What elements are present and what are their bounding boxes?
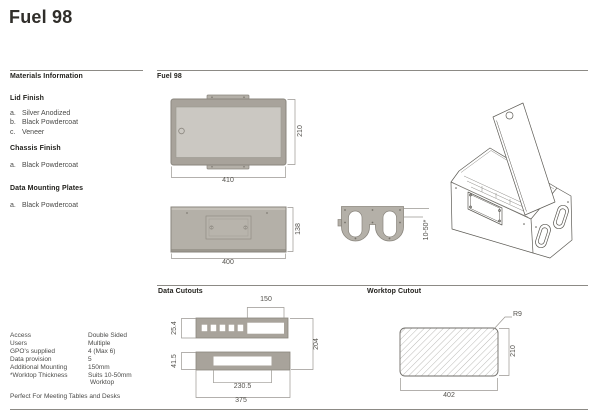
option-key: b. — [10, 118, 22, 127]
isometric-drawing — [437, 84, 595, 269]
dim-bracket-138 — [288, 208, 294, 252]
drawings-heading: Fuel 98 — [157, 73, 182, 80]
cutout-41-dim: 41.5 — [171, 346, 179, 376]
top-view-width-dim: 410 — [210, 177, 246, 184]
option-label: Silver Anodized — [22, 109, 70, 118]
option-label: Black Powdercoat — [22, 161, 78, 170]
option-row: a.Black Powdercoat — [10, 161, 78, 170]
spec-value: Double Sided — [88, 332, 127, 340]
spec-row: Data provision5 — [10, 356, 160, 364]
top-view-drawing — [168, 92, 308, 188]
materials-heading: Materials Information — [10, 73, 83, 80]
spec-value: 5 — [88, 356, 92, 364]
lid-panel — [176, 107, 281, 158]
front-view-drawing — [168, 204, 308, 266]
spec-value: Suits 10-50mm — [88, 372, 132, 380]
top-view-depth-dim: 210 — [297, 116, 305, 146]
chassis-finish-options: a.Black Powdercoat — [10, 161, 78, 170]
wide-cutout-row1 — [247, 323, 284, 334]
front-view-width-dim: 400 — [210, 259, 246, 266]
data-cutouts-drawing — [157, 293, 362, 408]
spec-label: Users — [10, 340, 88, 348]
top-edge-highlight — [172, 208, 286, 211]
footer-note: Perfect For Meeting Tables and Desks — [10, 393, 120, 400]
corner-screw — [186, 212, 188, 214]
dim-bracket-400 — [172, 254, 286, 259]
cutout-375-dim: 375 — [223, 397, 259, 404]
option-row: a.Black Powdercoat — [10, 201, 78, 210]
clamp-range-dim: 10-50* — [423, 215, 431, 245]
radius-leader — [493, 317, 512, 330]
option-key: a. — [10, 201, 22, 210]
spec-sheet-page: Fuel 98 Materials Information Lid Finish… — [0, 0, 600, 413]
data-mounting-plate-options: a.Black Powdercoat — [10, 201, 78, 210]
end-profile-drawing — [338, 203, 433, 253]
option-row: a.Silver Anodized — [10, 109, 78, 118]
cutout-204-dim: 204 — [313, 329, 321, 359]
spec-row: Additional Mounting150mm — [10, 364, 160, 372]
clamp-slot — [349, 211, 363, 237]
spec-value: 4 (Max 6) — [88, 348, 115, 356]
lid-finish-heading: Lid Finish — [10, 95, 44, 102]
wide-cutout-row2 — [214, 357, 272, 366]
spec-label: Additional Mounting — [10, 364, 88, 372]
dim-bracket-210 — [499, 329, 509, 376]
option-label: Black Powdercoat — [22, 118, 78, 127]
spec-label: Data provision — [10, 356, 88, 364]
tab-screw — [211, 96, 213, 98]
spec-table: AccessDouble Sided UsersMultiple GPO's s… — [10, 332, 160, 387]
option-key: a. — [10, 161, 22, 170]
spec-label: *Worktop Thickness — [10, 372, 88, 380]
cutouts-section-rule — [157, 285, 588, 286]
data-mounting-plates-heading: Data Mounting Plates — [10, 185, 83, 192]
front-view-height-dim: 138 — [295, 214, 303, 244]
cutout-25-dim: 25.4 — [171, 313, 179, 343]
drawing-column-rule — [157, 70, 588, 71]
tab-screw — [243, 166, 245, 168]
clamp-slot — [383, 211, 397, 237]
spec-label: Access — [10, 332, 88, 340]
cutout-230-dim: 230.5 — [224, 383, 261, 390]
tab-screw — [211, 166, 213, 168]
spec-row: UsersMultiple — [10, 340, 160, 348]
option-key: a. — [10, 109, 22, 118]
worktop-cutout-heading: Worktop Cutout — [367, 288, 421, 295]
corner-screw — [266, 212, 268, 214]
spec-row: *Worktop ThicknessSuits 10-50mm — [10, 372, 160, 380]
spec-row: AccessDouble Sided — [10, 332, 160, 340]
side-tab — [338, 220, 342, 227]
option-label: Black Powdercoat — [22, 201, 78, 210]
tab-screw — [243, 96, 245, 98]
worktop-hole — [400, 328, 498, 376]
option-label: Veneer — [22, 128, 44, 137]
dim-bracket-210 — [288, 100, 296, 165]
option-row: b.Black Powdercoat — [10, 118, 78, 127]
cutout-150-dim: 150 — [248, 296, 284, 303]
spec-label: GPO's supplied — [10, 348, 88, 356]
bottom-rule — [10, 409, 588, 410]
spec-value: Worktop — [88, 379, 114, 387]
worktop-depth-dim: 210 — [510, 336, 518, 366]
page-title: Fuel 98 — [9, 7, 72, 28]
dim-bracket-402 — [401, 378, 498, 391]
bottom-edge-shadow — [172, 249, 286, 252]
spec-value: 150mm — [88, 364, 110, 372]
spec-row: GPO's supplied4 (Max 6) — [10, 348, 160, 356]
spec-row: Worktop — [10, 379, 160, 387]
chassis-finish-heading: Chassis Finish — [10, 145, 61, 152]
option-key: c. — [10, 128, 22, 137]
option-row: c.Veneer — [10, 128, 78, 137]
worktop-radius-dim: R9 — [513, 311, 522, 318]
spec-value: Multiple — [88, 340, 110, 348]
left-column-rule — [10, 70, 143, 71]
worktop-width-dim: 402 — [431, 392, 467, 399]
lid-finish-options: a.Silver Anodized b.Black Powdercoat c.V… — [10, 109, 78, 137]
spec-label — [10, 379, 88, 387]
